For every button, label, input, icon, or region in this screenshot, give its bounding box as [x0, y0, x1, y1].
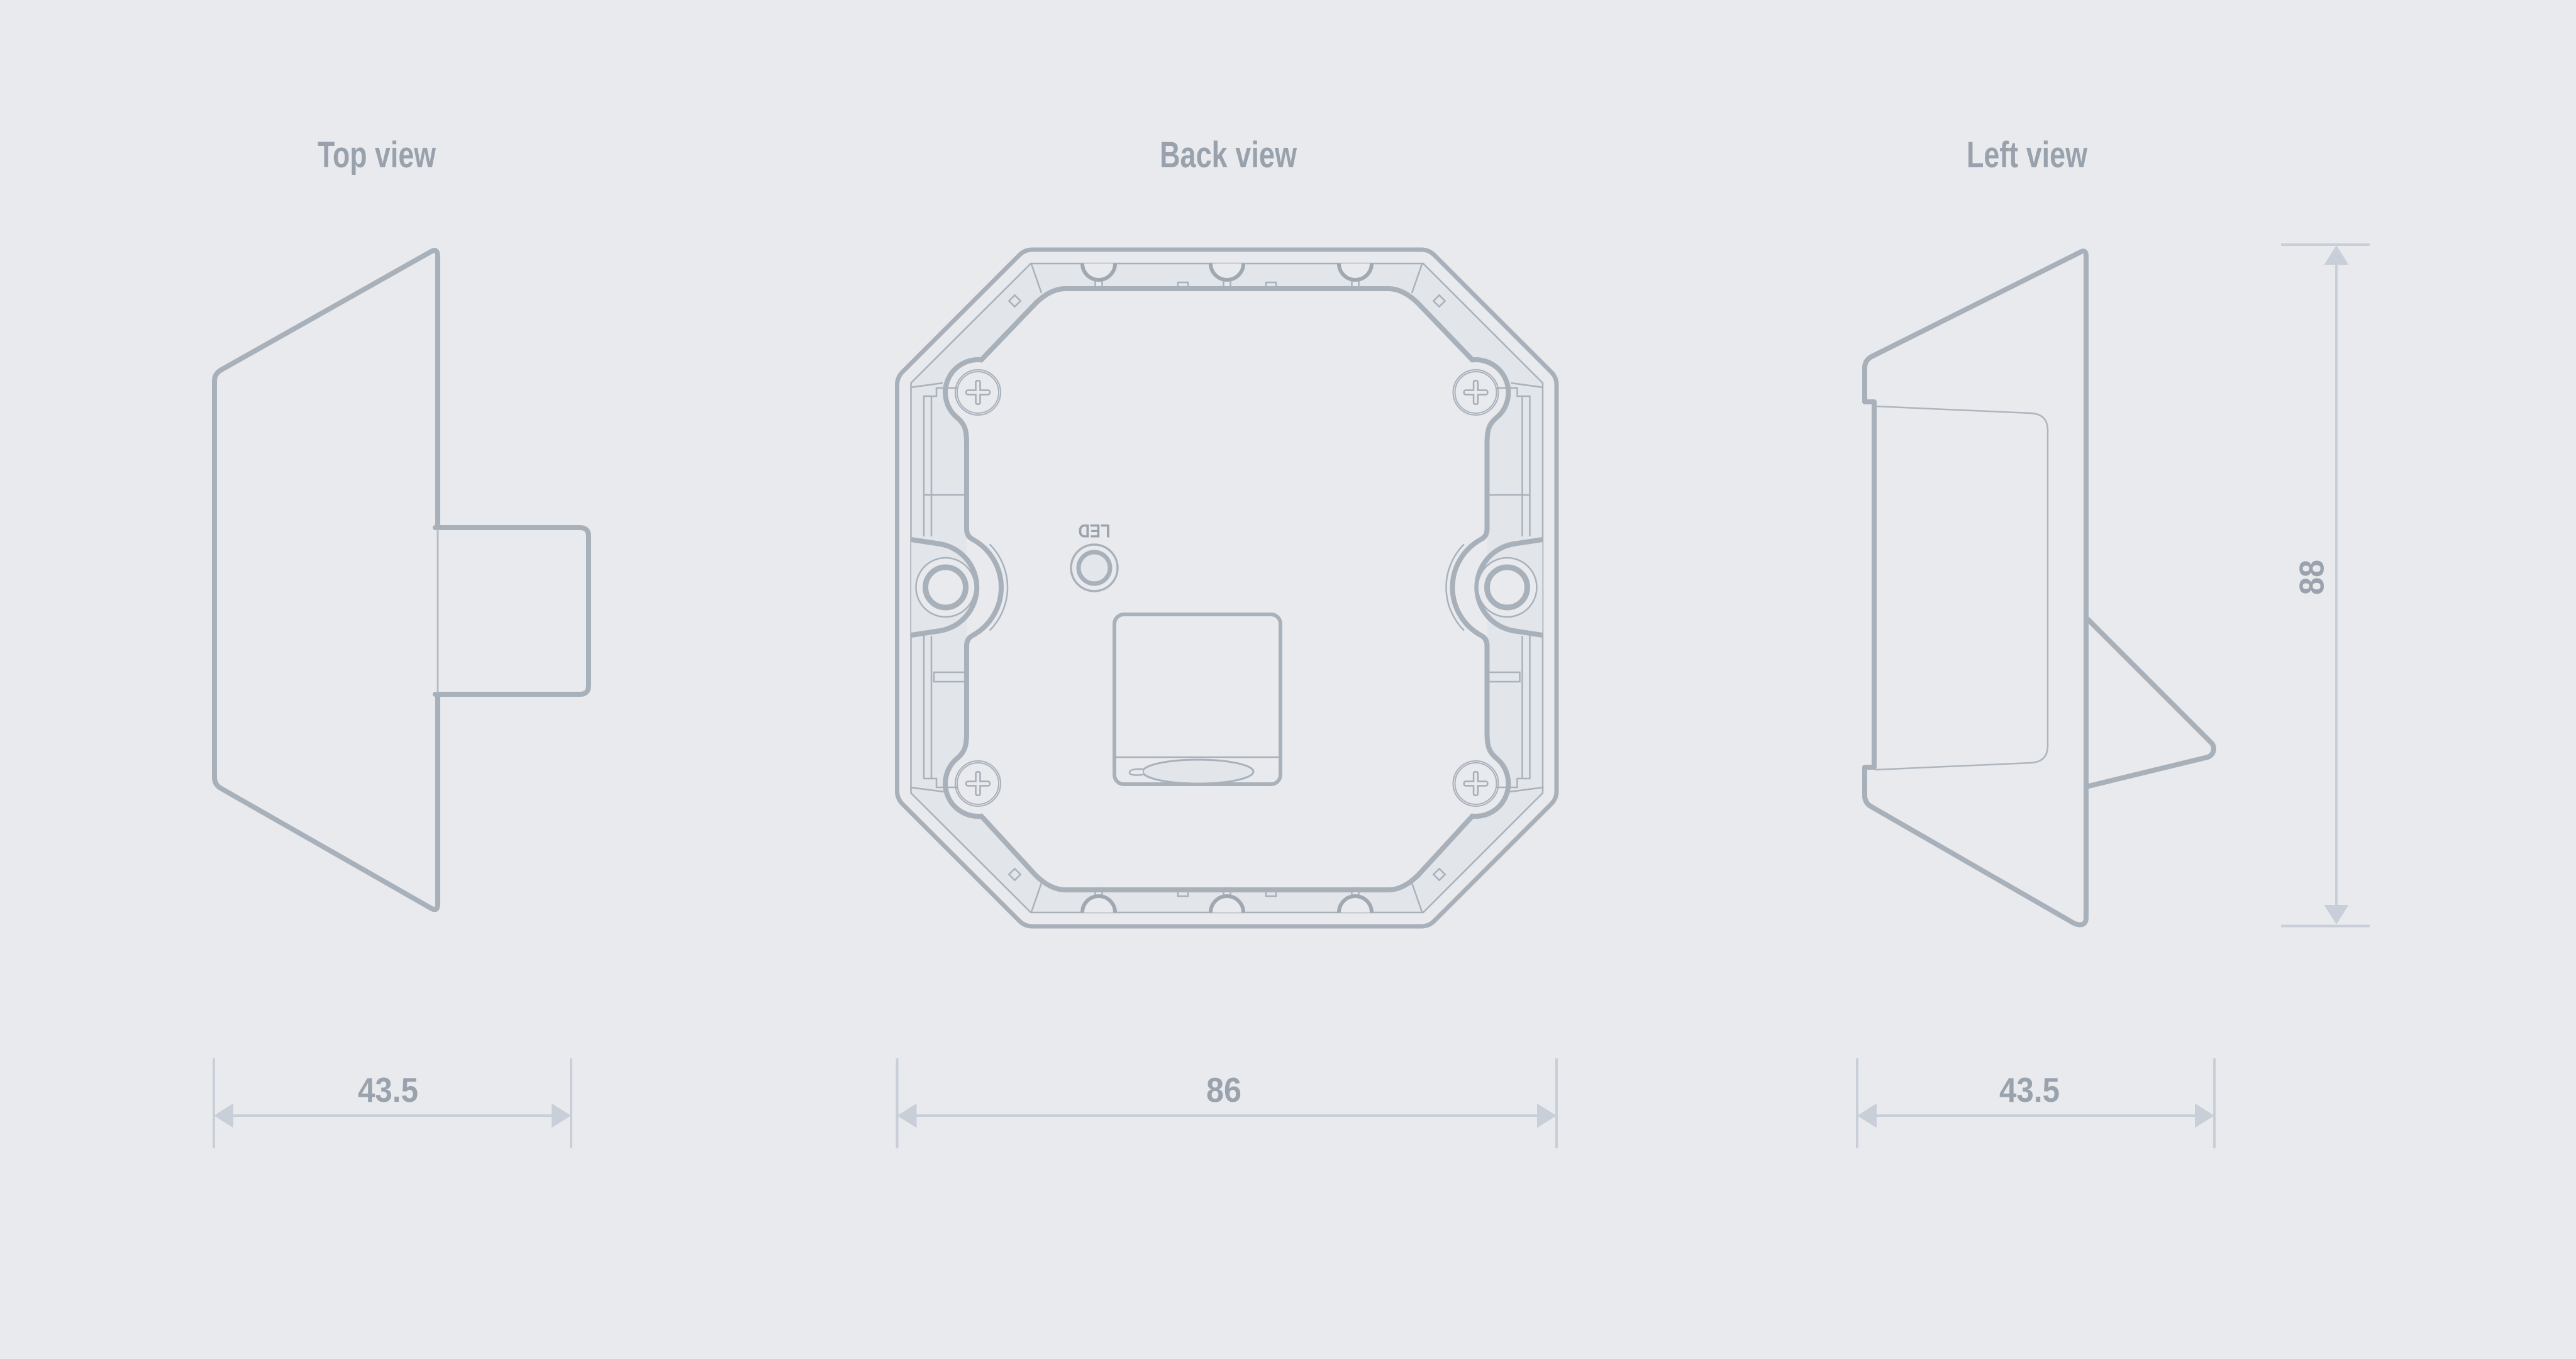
svg-text:86: 86 [1206, 1070, 1241, 1109]
svg-text:88: 88 [2292, 560, 2331, 595]
svg-text:LED: LED [1079, 520, 1111, 541]
svg-text:43.5: 43.5 [358, 1070, 418, 1109]
svg-text:43.5: 43.5 [1999, 1070, 2060, 1109]
svg-text:Left view: Left view [1967, 135, 2088, 175]
svg-text:Top view: Top view [318, 135, 436, 175]
svg-text:Back view: Back view [1160, 135, 1297, 175]
